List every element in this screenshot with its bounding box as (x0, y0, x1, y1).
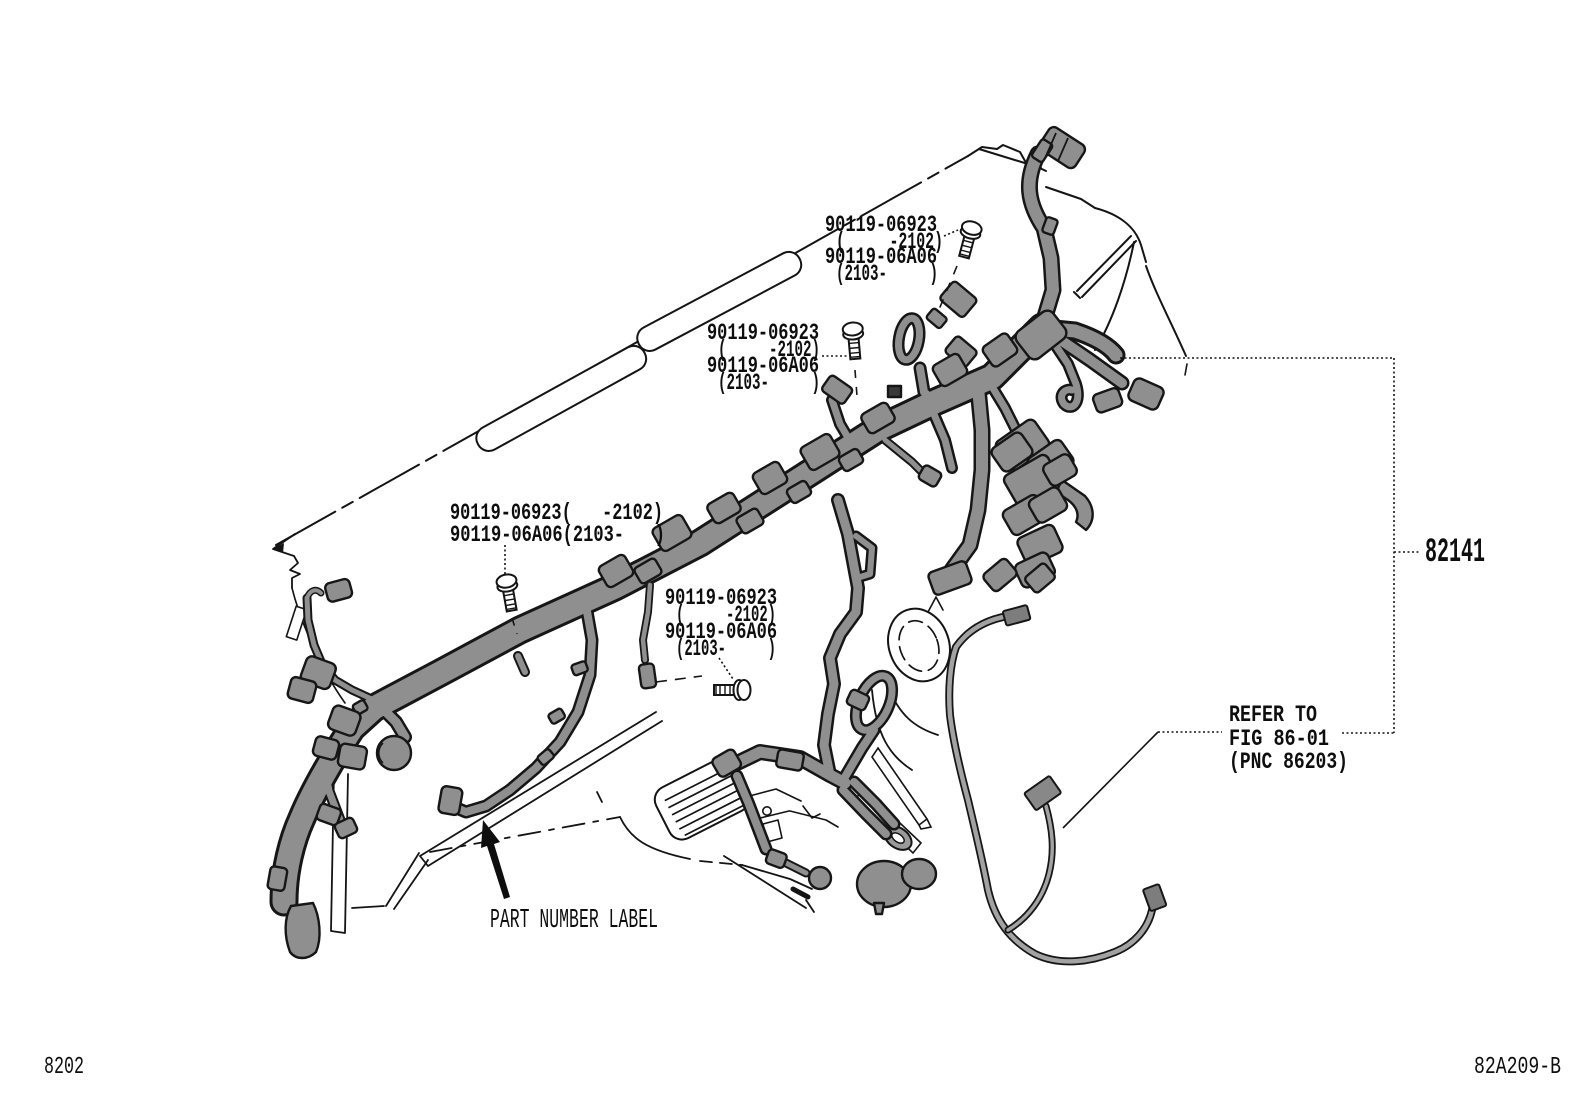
svg-text:8202: 8202 (44, 1054, 84, 1081)
svg-text:(2103- ): (2103- ) (836, 261, 938, 287)
svg-text:82141: 82141 (1425, 534, 1485, 572)
svg-text:REFER TO: REFER TO (1229, 702, 1317, 728)
svg-text:(2103- ): (2103- ) (676, 636, 776, 662)
svg-text:82A209-B: 82A209-B (1474, 1054, 1561, 1081)
svg-text:90119-06A06(2103- ): 90119-06A06(2103- ) (450, 522, 665, 548)
svg-text:(2103- ): (2103- ) (718, 370, 820, 396)
svg-text:PART NUMBER LABEL: PART NUMBER LABEL (490, 906, 658, 936)
svg-text:(PNC 86203): (PNC 86203) (1229, 749, 1348, 775)
